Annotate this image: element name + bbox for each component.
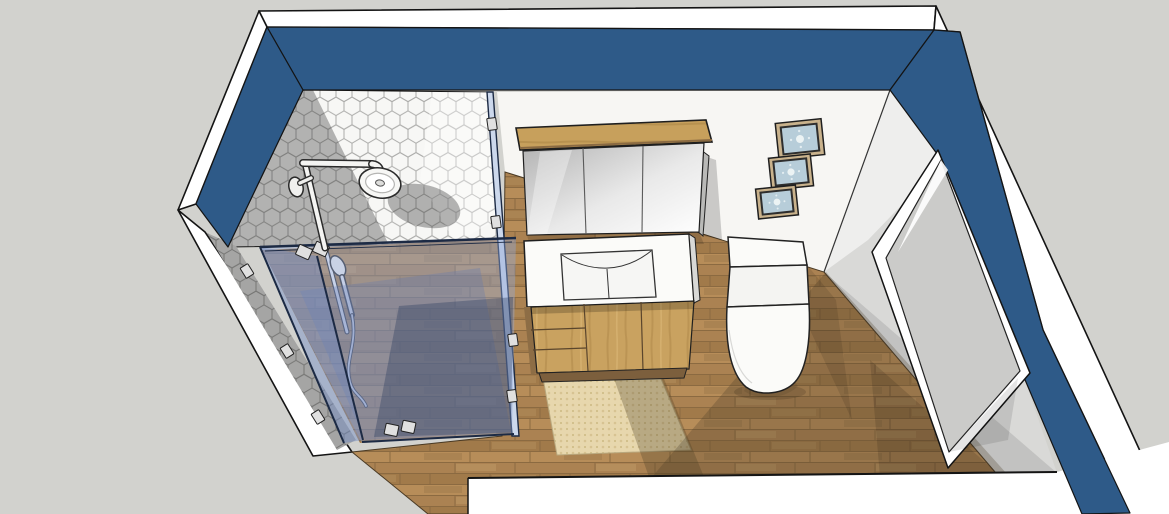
vanity[interactable] bbox=[524, 234, 700, 382]
toilet-cistern-top bbox=[728, 237, 807, 267]
art-frame[interactable] bbox=[768, 154, 813, 190]
wall-outer-top bbox=[259, 6, 936, 30]
bathroom-3d-view bbox=[0, 0, 1169, 514]
art-frame[interactable] bbox=[775, 119, 825, 160]
toilet-cistern-front bbox=[727, 265, 809, 307]
mirror-cabinet[interactable] bbox=[516, 120, 722, 247]
toilet-bowl bbox=[727, 304, 810, 393]
art-frame[interactable] bbox=[756, 185, 799, 219]
navy-back-band bbox=[267, 27, 934, 90]
vanity-basin[interactable] bbox=[561, 250, 656, 300]
